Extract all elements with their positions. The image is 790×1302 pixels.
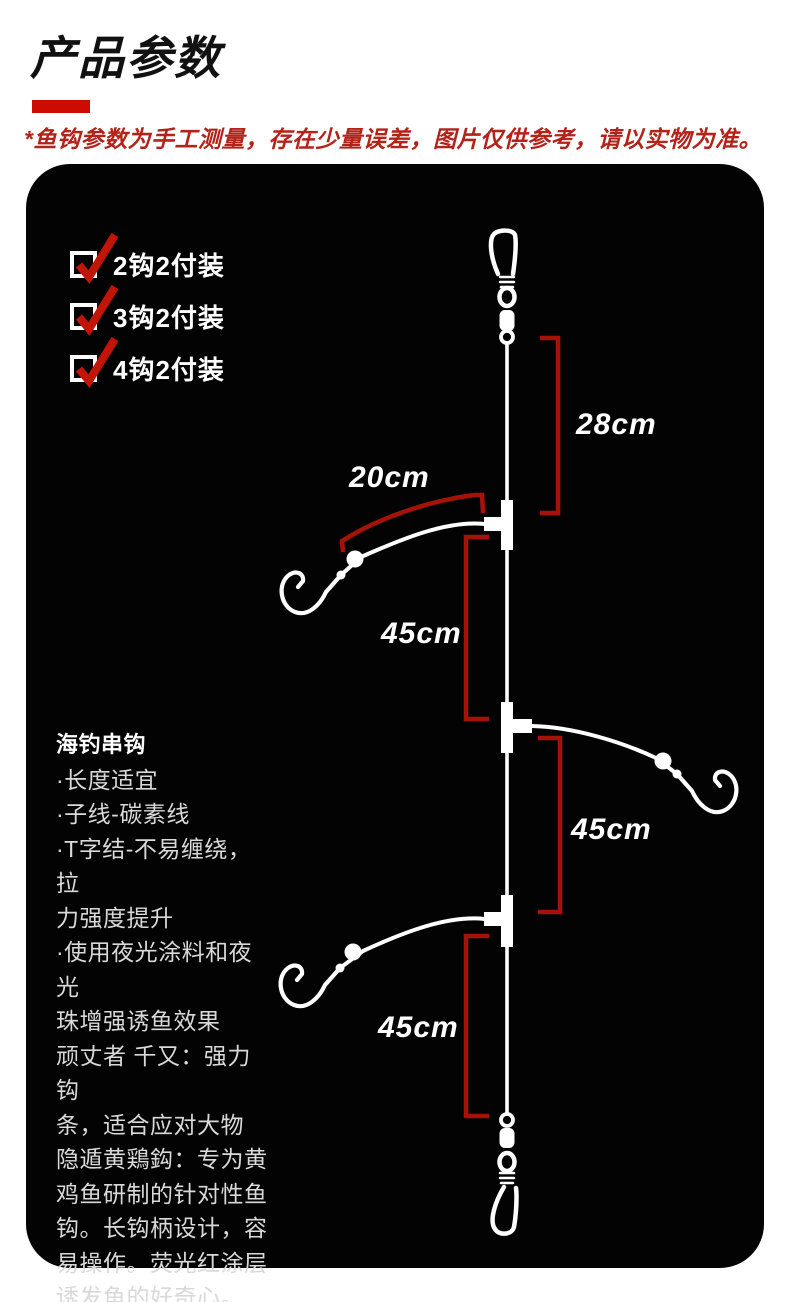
measurement-label-45cm-1: 45cm	[381, 617, 462, 651]
fishing-rig-diagram	[26, 164, 764, 1268]
fish-hook-left-2-icon	[281, 966, 340, 1007]
snap-swivel-top-icon	[491, 231, 516, 343]
fish-hook-right-icon	[677, 772, 736, 813]
luminous-bead-small	[336, 964, 345, 973]
luminous-bead-small	[673, 770, 682, 779]
page-title: 产品参数	[30, 32, 222, 84]
measurement-label-45cm-3: 45cm	[378, 1011, 459, 1045]
t-joint-2	[501, 702, 513, 753]
measurement-label-45cm-2: 45cm	[571, 813, 652, 847]
branch-line-1	[282, 523, 485, 613]
luminous-bead-large	[347, 551, 364, 568]
t-joint-1	[501, 500, 513, 550]
snap-swivel-bottom-icon	[493, 1114, 517, 1234]
bracket-45cm-3	[466, 936, 489, 1116]
luminous-bead-large	[345, 944, 362, 961]
branch-line-3	[281, 918, 485, 1006]
bracket-45cm-2	[538, 738, 560, 912]
bracket-45cm-1	[466, 537, 489, 719]
luminous-bead-small	[337, 571, 346, 580]
bracket-28cm	[540, 338, 558, 513]
fish-hook-left-1-icon	[282, 573, 341, 614]
t-joint-3	[501, 895, 513, 947]
measurement-label-20cm: 20cm	[349, 461, 430, 495]
measurement-disclaimer: *鱼钩参数为手工测量，存在少量误差，图片仅供参考，请以实物为准。	[24, 125, 764, 153]
t-joint-2-connector	[513, 719, 532, 733]
luminous-bead-large	[655, 753, 672, 770]
description-line: 诱发鱼的好奇心。	[56, 1280, 271, 1302]
product-parameters-page: 产品参数 *鱼钩参数为手工测量，存在少量误差，图片仅供参考，请以实物为准。 2钩…	[0, 0, 790, 1302]
title-underline	[32, 100, 90, 113]
branch-line-2	[532, 726, 736, 812]
measurement-label-28cm: 28cm	[576, 408, 657, 442]
